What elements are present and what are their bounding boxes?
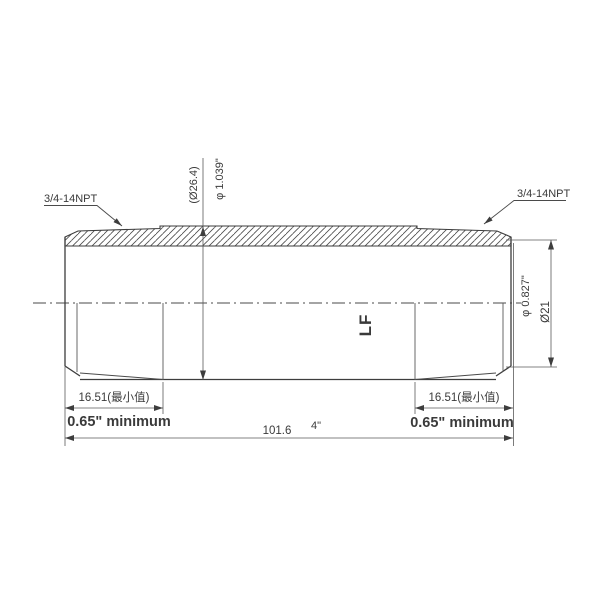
label-thread-len-inch-left: 0.65" minimum — [67, 414, 171, 430]
callout-thread-left: 3/4-14NPT — [44, 193, 122, 226]
thread-root-lines — [80, 373, 496, 380]
thread-gauge-lines — [77, 303, 503, 380]
arrow-end-dia-top — [548, 240, 554, 250]
left-bottom-chamfer — [65, 366, 80, 376]
pipe-outline — [65, 237, 511, 380]
arrow-thread-right-a — [415, 405, 424, 411]
label-end-dia-inch: φ 0.827" — [520, 275, 532, 317]
label-od-inch: φ 1.039" — [214, 158, 226, 200]
leader-thread-right — [484, 201, 566, 225]
arrow-end-dia-bottom — [548, 358, 554, 368]
right-bottom-chamfer — [496, 366, 511, 376]
pipe-top-band — [65, 226, 511, 246]
label-thread-len-metric-left: 16.51(最小值) — [79, 391, 150, 404]
dim-end-diameter: φ 0.827" Ø21 — [520, 240, 554, 367]
dim-outer-diameter: (Ø26.4) φ 1.039" — [188, 158, 226, 380]
arrow-thread-right-b — [504, 405, 513, 411]
dim-thread-length-left: 16.51(最小值) 0.65" minimum — [65, 391, 171, 430]
label-thread-len-inch-right: 0.65" minimum — [410, 415, 514, 431]
left-thread-taper — [80, 373, 163, 380]
arrow-thread-left-a — [65, 405, 74, 411]
technical-drawing-canvas: (Ø26.4) φ 1.039" φ 0.827" Ø21 16.51(最小值)… — [0, 0, 600, 600]
label-thread-left: 3/4-14NPT — [44, 193, 97, 205]
dim-thread-length-right: 16.51(最小值) 0.65" minimum — [410, 391, 514, 431]
label-end-dia-metric: Ø21 — [540, 301, 552, 323]
arrow-thread-callout-right — [484, 217, 493, 225]
label-thread-right: 3/4-14NPT — [517, 188, 570, 200]
label-od-metric: (Ø26.4) — [188, 166, 200, 203]
body-mark-text: LF — [356, 314, 375, 337]
arrow-thread-callout-left — [114, 218, 123, 226]
label-overall-inch: 4" — [311, 420, 321, 432]
label-thread-len-metric-right: 16.51(最小值) — [429, 391, 500, 404]
leader-thread-left — [44, 206, 122, 227]
right-thread-taper — [415, 373, 496, 380]
arrow-od-bottom — [200, 371, 206, 381]
top-wall-section — [65, 226, 511, 246]
arrow-thread-left-b — [154, 405, 163, 411]
callout-thread-right: 3/4-14NPT — [484, 188, 570, 224]
pipe-nipple-drawing: (Ø26.4) φ 1.039" φ 0.827" Ø21 16.51(最小值)… — [0, 0, 600, 600]
arrow-overall-right — [504, 435, 513, 441]
label-overall-metric: 101.6 — [263, 425, 292, 437]
arrow-overall-left — [65, 435, 74, 441]
